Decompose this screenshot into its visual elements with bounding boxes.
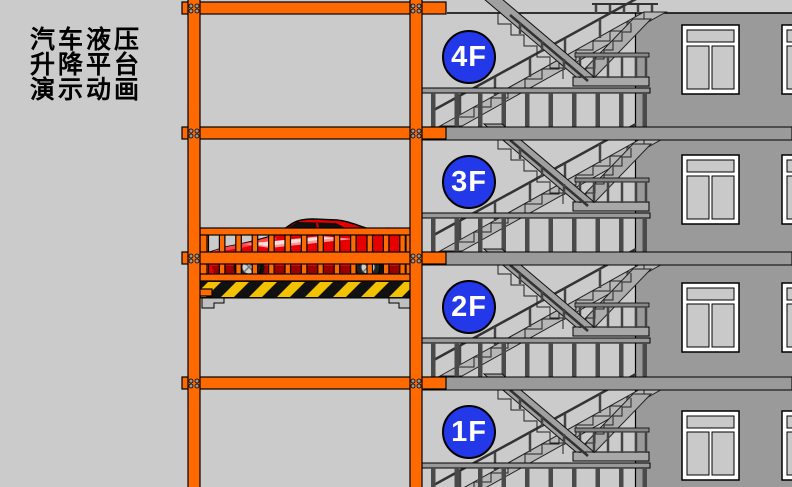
title-line-3: 演示动画 [30,78,142,103]
floor-badge-label: 2F [451,291,487,324]
floor-badge-3f: 3F [442,155,496,209]
page-title: 汽车液压 升降平台 演示动画 [30,28,142,103]
floor-badge-1f: 1F [442,405,496,459]
animation-stage[interactable]: 汽车液压 升降平台 演示动画 4F 3F 2F 1F [0,0,792,487]
hazard-stripe-band [192,281,418,298]
floor-badge-label: 3F [451,166,487,199]
title-line-1: 汽车液压 [30,28,142,53]
floor-badge-label: 1F [451,416,487,449]
floor-badge-4f: 4F [442,30,496,84]
title-line-2: 升降平台 [30,53,142,78]
floor-badge-label: 4F [451,41,487,74]
floor-badge-2f: 2F [442,280,496,334]
